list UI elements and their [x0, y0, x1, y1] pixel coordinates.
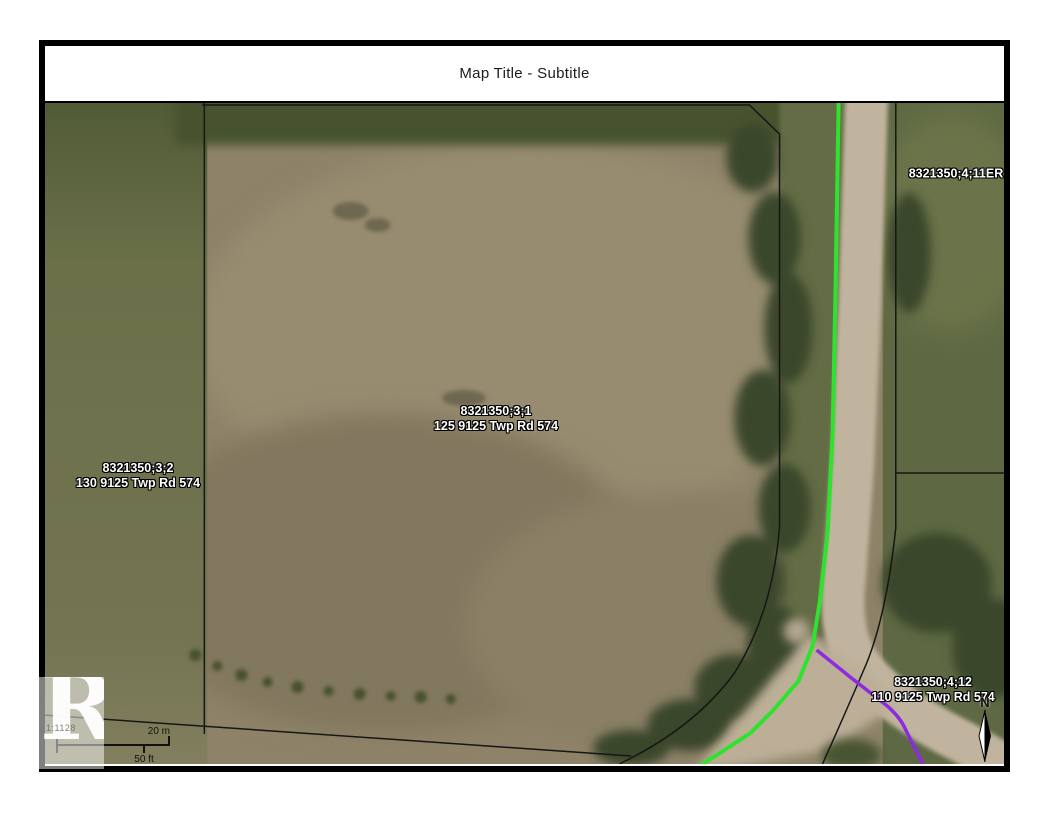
north-arrow-icon [976, 710, 994, 762]
parcel-label-topright: 8321350;4;11ER [909, 167, 1004, 182]
parcel-address: 125 9125 Twp Rd 574 [434, 419, 558, 434]
gravel-patch [784, 618, 810, 644]
parcel-id: 8321350;3;2 [76, 461, 200, 476]
logo-letter: R [40, 677, 104, 753]
scale-ratio-text: 1:1128 [46, 723, 76, 733]
parcel-id: 8321350;4;11ER [909, 167, 1004, 182]
scale-metric-label: 20 m [148, 726, 170, 737]
map-area: 8321350;3;1 125 9125 Twp Rd 574 8321350;… [45, 103, 1004, 764]
map-title-bar: Map Title - Subtitle [45, 46, 1004, 103]
scale-imperial-label: 50 ft [134, 754, 154, 763]
parcel-id: 8321350;3;1 [434, 404, 558, 419]
north-label: N [973, 696, 997, 709]
north-arrow: N [973, 696, 997, 762]
parcel-address: 130 9125 Twp Rd 574 [76, 476, 200, 491]
map-frame: Map Title - Subtitle [39, 40, 1010, 772]
map-title: Map Title - Subtitle [459, 65, 589, 82]
parcel-label-center: 8321350;3;1 125 9125 Twp Rd 574 [434, 404, 558, 434]
logo-watermark: R 1:1128 [38, 677, 104, 769]
map-document: Map Title - Subtitle [0, 0, 1056, 816]
parcel-label-left: 8321350;3;2 130 9125 Twp Rd 574 [76, 461, 200, 491]
parcel-id: 8321350;4;12 [871, 675, 994, 690]
left-parcel-grass [45, 103, 207, 764]
